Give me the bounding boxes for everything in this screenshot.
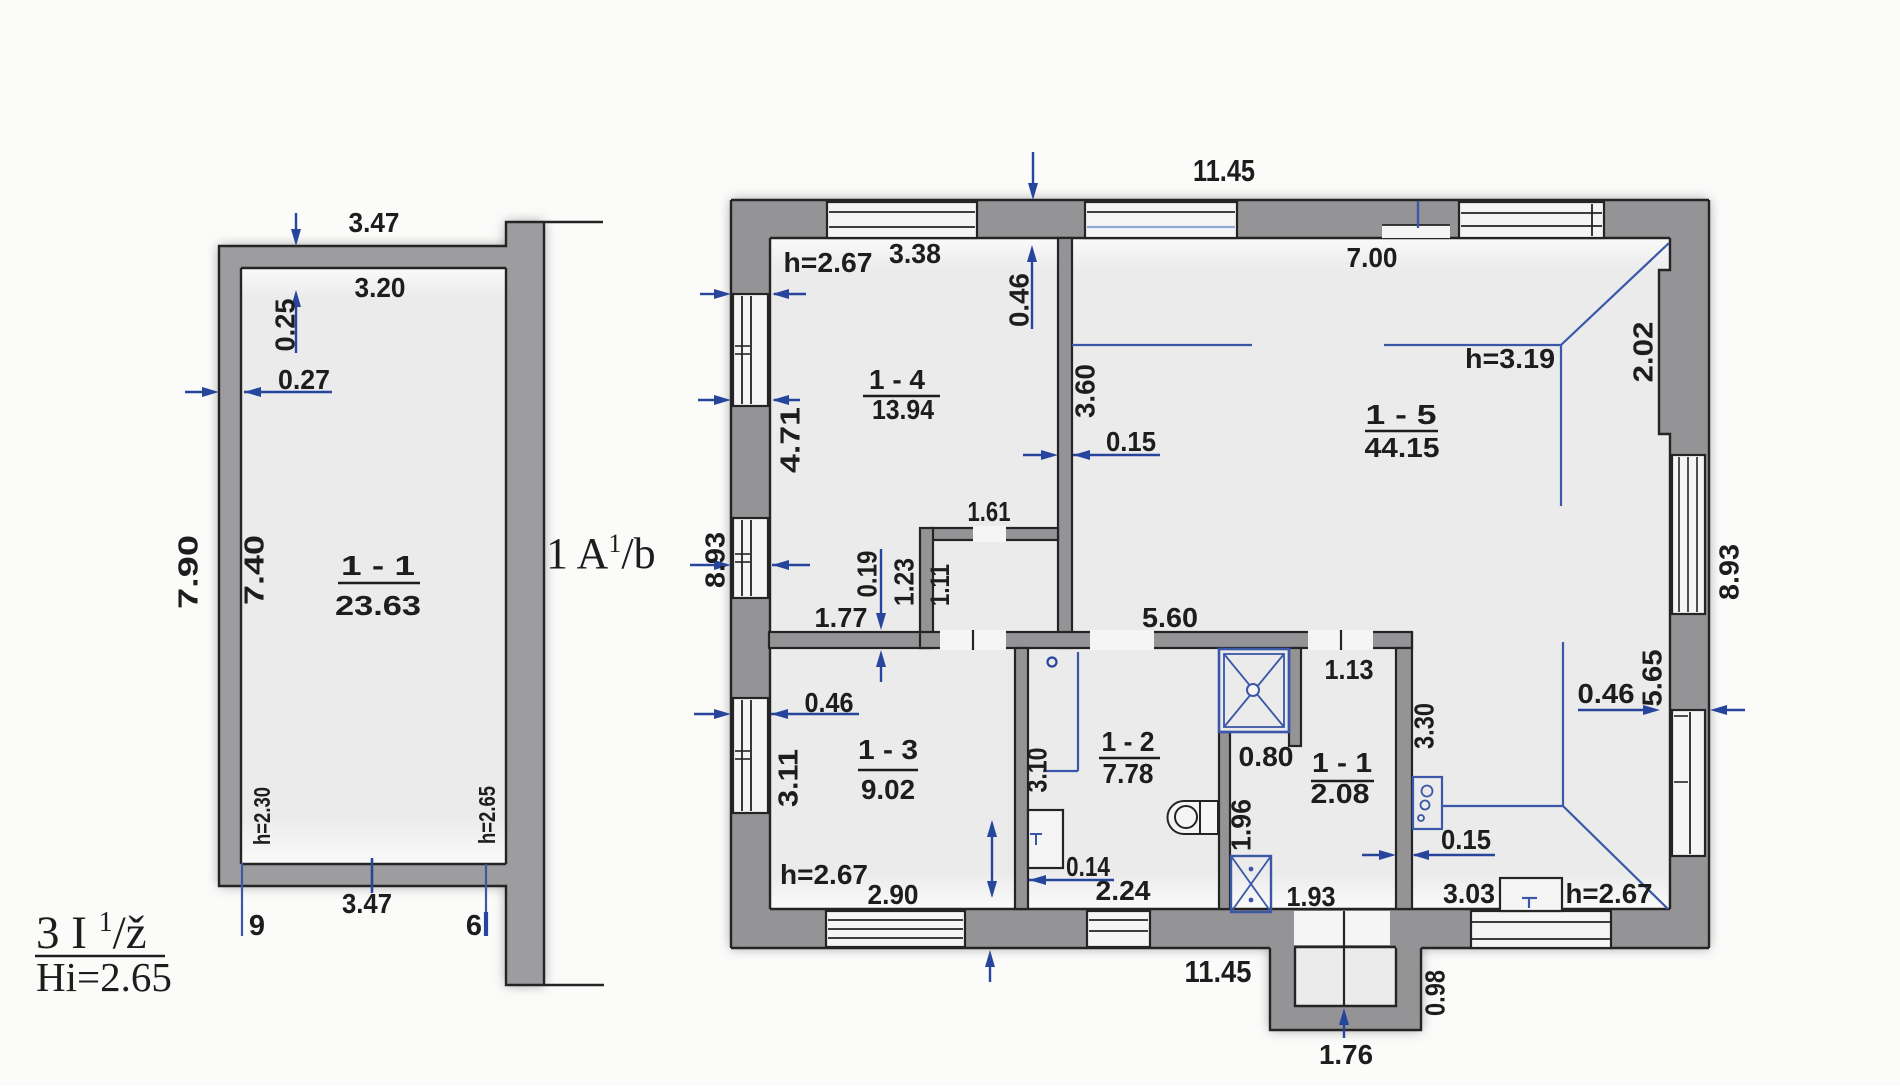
svg-text:h=3.19: h=3.19: [1465, 343, 1555, 374]
svg-text:0.27: 0.27: [278, 364, 330, 395]
svg-text:3.47: 3.47: [349, 207, 400, 238]
svg-text:13.94: 13.94: [872, 394, 934, 425]
svg-text:1.13: 1.13: [1325, 654, 1374, 685]
svg-text:h=2.30: h=2.30: [249, 787, 275, 845]
svg-text:1 A1/b: 1 A1/b: [546, 529, 656, 578]
svg-text:2.24: 2.24: [1096, 875, 1151, 906]
svg-text:0.15: 0.15: [1441, 824, 1491, 855]
svg-text:5.65: 5.65: [1636, 650, 1667, 707]
svg-text:1.23: 1.23: [888, 558, 919, 606]
svg-text:6: 6: [466, 910, 482, 942]
svg-text:44.15: 44.15: [1365, 432, 1440, 463]
svg-text:Hi=2.65: Hi=2.65: [36, 954, 172, 1000]
svg-text:3 I 1/ž: 3 I 1/ž: [36, 907, 147, 959]
svg-text:7.78: 7.78: [1103, 758, 1154, 789]
svg-text:2.02: 2.02: [1627, 322, 1658, 383]
svg-text:0.46: 0.46: [1003, 273, 1034, 327]
svg-text:3.47: 3.47: [342, 888, 392, 919]
svg-text:1.11: 1.11: [925, 564, 955, 606]
svg-text:1.76: 1.76: [1319, 1039, 1373, 1070]
svg-text:h=2.67: h=2.67: [780, 859, 868, 890]
svg-text:1 - 1: 1 - 1: [341, 550, 415, 581]
svg-text:1.93: 1.93: [1287, 881, 1336, 912]
svg-text:0.80: 0.80: [1239, 741, 1294, 772]
svg-text:1.77: 1.77: [815, 602, 868, 633]
svg-text:11.45: 11.45: [1185, 954, 1252, 989]
svg-text:0.98: 0.98: [1419, 970, 1450, 1016]
svg-text:h=2.67: h=2.67: [1566, 878, 1653, 909]
svg-text:0.46: 0.46: [1578, 678, 1635, 709]
svg-text:1.96: 1.96: [1225, 799, 1256, 851]
svg-text:3.30: 3.30: [1408, 703, 1439, 749]
svg-text:h=2.65: h=2.65: [474, 786, 500, 844]
svg-text:7.90: 7.90: [172, 535, 203, 609]
svg-text:3.20: 3.20: [355, 272, 406, 303]
svg-text:3.03: 3.03: [1443, 878, 1495, 909]
svg-text:1 - 5: 1 - 5: [1366, 399, 1437, 430]
svg-text:9: 9: [249, 910, 265, 942]
svg-text:2.90: 2.90: [868, 879, 919, 910]
svg-text:1 - 1: 1 - 1: [1312, 747, 1372, 778]
svg-text:7.40: 7.40: [238, 535, 269, 605]
svg-text:3.38: 3.38: [889, 238, 941, 269]
svg-text:0.15: 0.15: [1106, 426, 1156, 457]
svg-text:0.46: 0.46: [805, 687, 854, 718]
svg-text:8.93: 8.93: [699, 532, 730, 588]
svg-text:3.10: 3.10: [1021, 748, 1052, 793]
svg-text:23.63: 23.63: [335, 590, 421, 621]
svg-text:3.60: 3.60: [1069, 364, 1100, 418]
svg-text:8.93: 8.93: [1713, 544, 1744, 600]
svg-text:1 - 4: 1 - 4: [869, 364, 925, 395]
svg-text:0.25: 0.25: [269, 299, 300, 352]
svg-text:1 - 3: 1 - 3: [858, 734, 918, 765]
svg-text:5.60: 5.60: [1142, 602, 1198, 633]
svg-text:11.45: 11.45: [1193, 153, 1255, 188]
svg-text:1 - 2: 1 - 2: [1102, 726, 1155, 757]
svg-text:9.02: 9.02: [861, 774, 915, 805]
svg-text:1.61: 1.61: [968, 496, 1011, 527]
svg-text:0.19: 0.19: [851, 551, 882, 598]
svg-text:7.00: 7.00: [1347, 242, 1398, 273]
svg-text:2.08: 2.08: [1311, 778, 1370, 809]
svg-text:4.71: 4.71: [774, 407, 805, 473]
svg-text:3.11: 3.11: [772, 749, 803, 807]
svg-text:h=2.67: h=2.67: [784, 247, 873, 278]
